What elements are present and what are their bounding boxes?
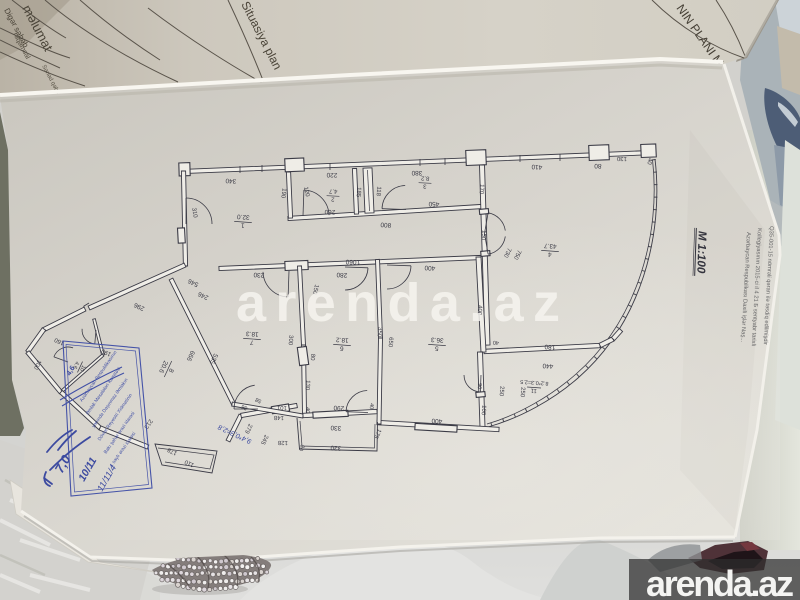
- svg-text:arenda.az: arenda.az: [236, 273, 560, 333]
- svg-text:290: 290: [333, 404, 344, 411]
- svg-text:36.3: 36.3: [430, 336, 443, 344]
- svg-text:32.0: 32.0: [236, 213, 249, 221]
- svg-text:250: 250: [519, 387, 526, 398]
- svg-text:1060: 1060: [345, 258, 360, 266]
- svg-text:400: 400: [431, 417, 442, 424]
- svg-text:90: 90: [476, 383, 482, 390]
- svg-text:300: 300: [287, 335, 294, 346]
- svg-text:440: 440: [542, 362, 553, 369]
- svg-text:380: 380: [411, 169, 422, 176]
- svg-text:130: 130: [616, 155, 627, 161]
- svg-text:220: 220: [326, 171, 337, 178]
- svg-text:400: 400: [424, 264, 435, 271]
- svg-text:100: 100: [480, 405, 487, 416]
- svg-text:330: 330: [330, 424, 341, 431]
- svg-text:101: 101: [276, 404, 287, 410]
- svg-text:118: 118: [375, 186, 382, 197]
- svg-text:128: 128: [277, 439, 288, 445]
- svg-text:450: 450: [428, 200, 439, 207]
- svg-text:80: 80: [309, 354, 315, 362]
- svg-text:80: 80: [594, 162, 602, 169]
- svg-text:40: 40: [304, 407, 310, 414]
- svg-text:250: 250: [498, 386, 505, 397]
- svg-text:150: 150: [480, 230, 487, 241]
- svg-text:800: 800: [380, 221, 392, 229]
- svg-text:148: 148: [273, 414, 284, 420]
- svg-text:18.2: 18.2: [335, 336, 348, 344]
- svg-text:170: 170: [478, 184, 485, 195]
- svg-text:arenda.az: arenda.az: [646, 563, 794, 600]
- svg-text:260: 260: [324, 208, 335, 215]
- svg-text:130: 130: [304, 380, 311, 391]
- svg-text:340: 340: [225, 177, 237, 185]
- svg-text:4.7: 4.7: [328, 187, 337, 193]
- svg-text:43.7: 43.7: [543, 242, 556, 250]
- svg-text:320: 320: [330, 444, 341, 451]
- svg-text:40: 40: [493, 339, 499, 345]
- svg-text:8.2: 8.2: [420, 174, 429, 180]
- svg-text:180: 180: [544, 343, 555, 350]
- svg-text:40: 40: [368, 403, 374, 410]
- svg-text:410: 410: [531, 163, 542, 170]
- svg-text:185: 185: [355, 187, 362, 198]
- svg-text:650: 650: [387, 337, 394, 348]
